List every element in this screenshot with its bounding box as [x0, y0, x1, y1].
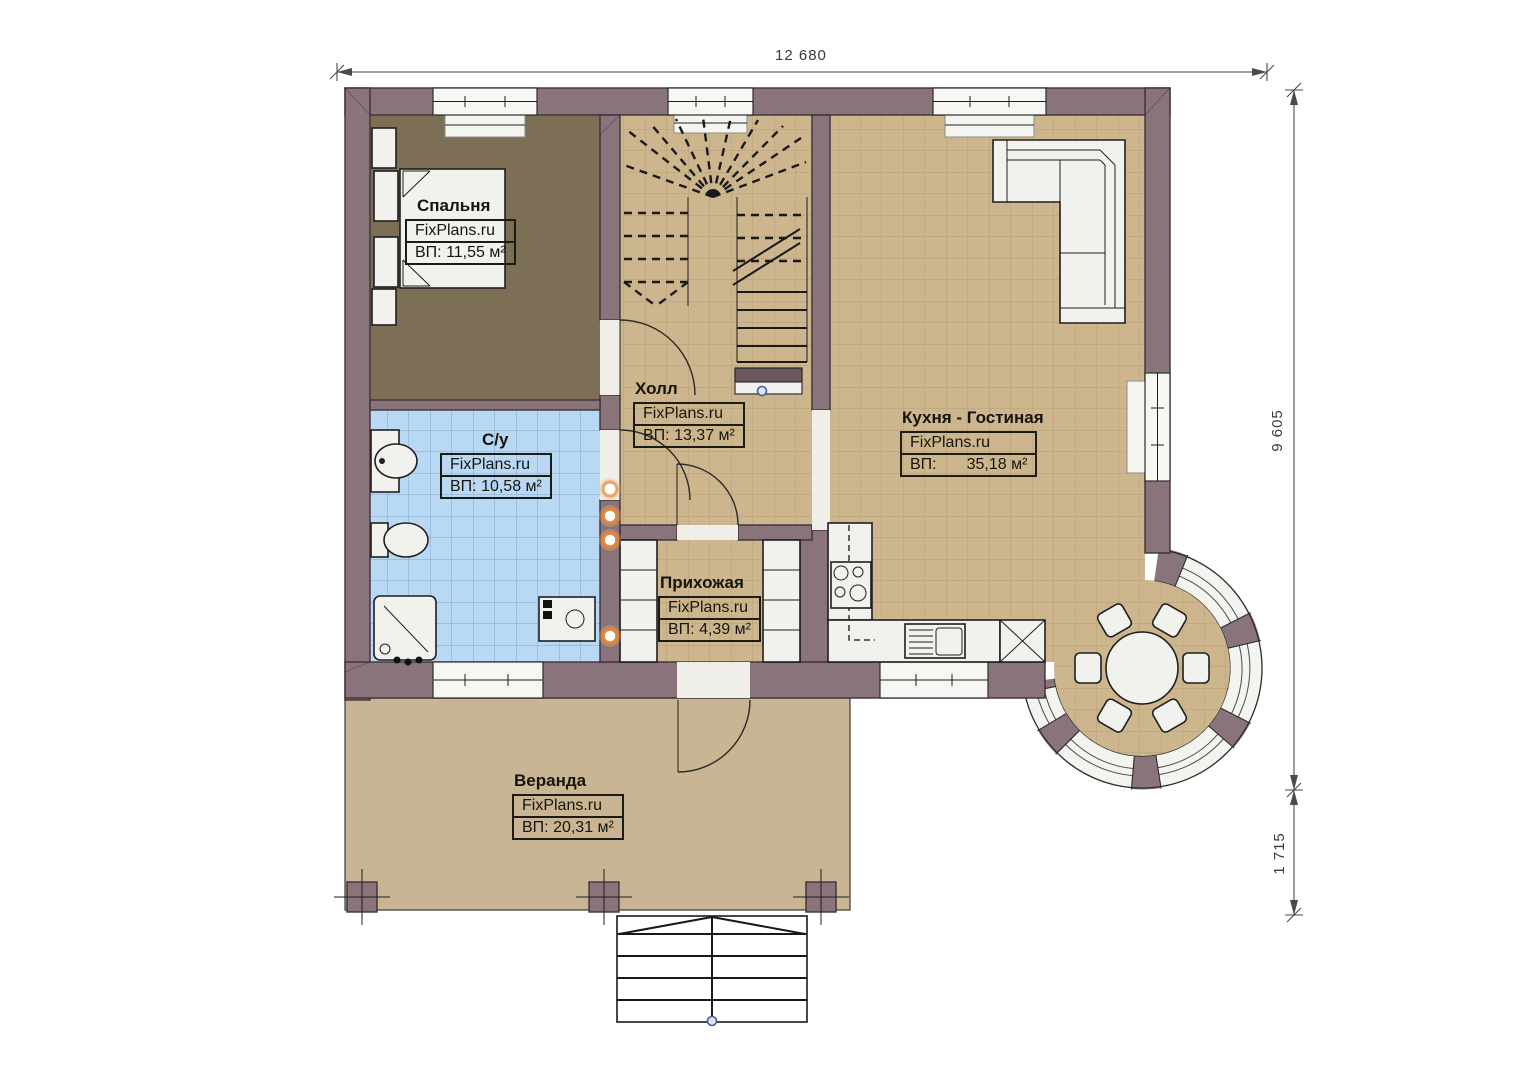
room-label-veranda: Веранда FixPlans.ru ВП: 20,31 м² [512, 771, 624, 840]
room-brand: FixPlans.ru [514, 796, 622, 816]
room-label-hall: Холл FixPlans.ru ВП: 13,37 м² [633, 379, 745, 448]
marker-dot-steps [708, 1017, 717, 1026]
shower [374, 596, 436, 666]
room-name: Веранда [514, 771, 624, 791]
room-name: Спальня [417, 196, 516, 216]
closet [372, 128, 396, 168]
entry-steps [617, 916, 807, 1026]
room-area: ВП: 4,39 м² [660, 618, 759, 640]
window-kitchen-top [933, 88, 1046, 115]
closet [372, 289, 396, 325]
room-label-bathroom: С/у FixPlans.ru ВП: 10,58 м² [440, 430, 552, 499]
nightstand [374, 237, 398, 287]
floorplan-canvas [0, 0, 1528, 1080]
dimension-height-main: 9 605 [1269, 409, 1286, 452]
marker-dot-stairs [758, 387, 767, 396]
window-kitchen-bottom [880, 662, 988, 698]
window-bathroom-bottom [433, 662, 543, 698]
washing-machine [539, 597, 595, 641]
chair [1075, 653, 1101, 683]
room-area-prefix: ВП: [910, 456, 937, 474]
fridge [1000, 620, 1045, 662]
hall-floor [620, 115, 812, 525]
window-stairs-top [668, 88, 753, 115]
room-label-bedroom: Спальня FixPlans.ru ВП: 11,55 м² [405, 196, 516, 265]
room-name: Холл [635, 379, 745, 399]
floorplan-page: Спальня FixPlans.ru ВП: 11,55 м² Холл Fi… [0, 0, 1528, 1080]
chair [1183, 653, 1209, 683]
window-bedroom-top [433, 88, 537, 115]
room-area: ВП: 13,37 м² [635, 424, 743, 446]
room-brand: FixPlans.ru [407, 221, 514, 241]
nightstand [374, 171, 398, 221]
kitchen-sink [905, 624, 965, 658]
window-kitchen-right [1145, 373, 1170, 481]
room-name: Прихожая [660, 573, 761, 593]
room-area: ВП: 10,58 м² [442, 475, 550, 497]
room-area: ВП: 11,55 м² [407, 241, 514, 263]
stove [831, 562, 871, 608]
room-label-kitchen-living: Кухня - Гостиная FixPlans.ru ВП: 35,18 м… [900, 408, 1044, 477]
room-brand: FixPlans.ru [442, 455, 550, 475]
room-name: С/у [482, 430, 552, 450]
dimension-width-total: 12 680 [775, 47, 827, 64]
room-name: Кухня - Гостиная [902, 408, 1044, 428]
room-area: ВП: 20,31 м² [514, 816, 622, 838]
room-area-value: 35,18 м² [967, 456, 1028, 474]
room-brand: FixPlans.ru [902, 433, 1035, 453]
toilet [371, 523, 428, 557]
room-label-entry-hall: Прихожая FixPlans.ru ВП: 4,39 м² [658, 573, 761, 642]
wardrobe [763, 540, 800, 662]
room-brand: FixPlans.ru [660, 598, 759, 618]
room-brand: FixPlans.ru [635, 404, 743, 424]
wardrobe [620, 540, 657, 662]
dimension-height-veranda: 1 715 [1271, 832, 1288, 875]
